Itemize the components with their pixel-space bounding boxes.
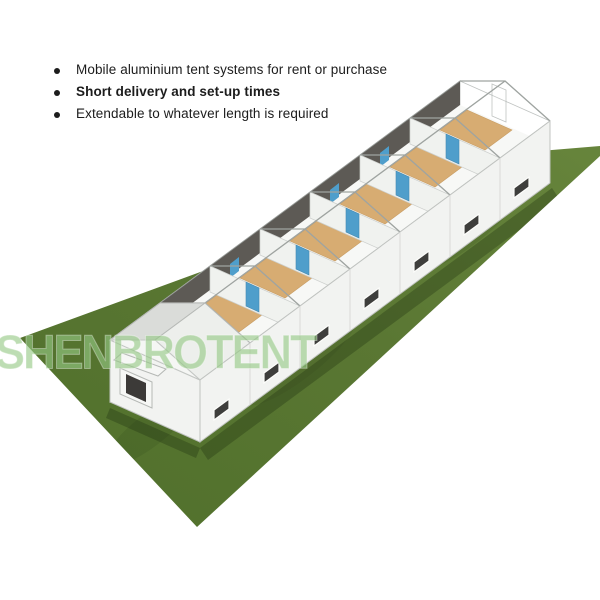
product-slide: Mobile aluminium tent systems for rent o… bbox=[0, 0, 600, 600]
tent-render bbox=[0, 0, 600, 600]
